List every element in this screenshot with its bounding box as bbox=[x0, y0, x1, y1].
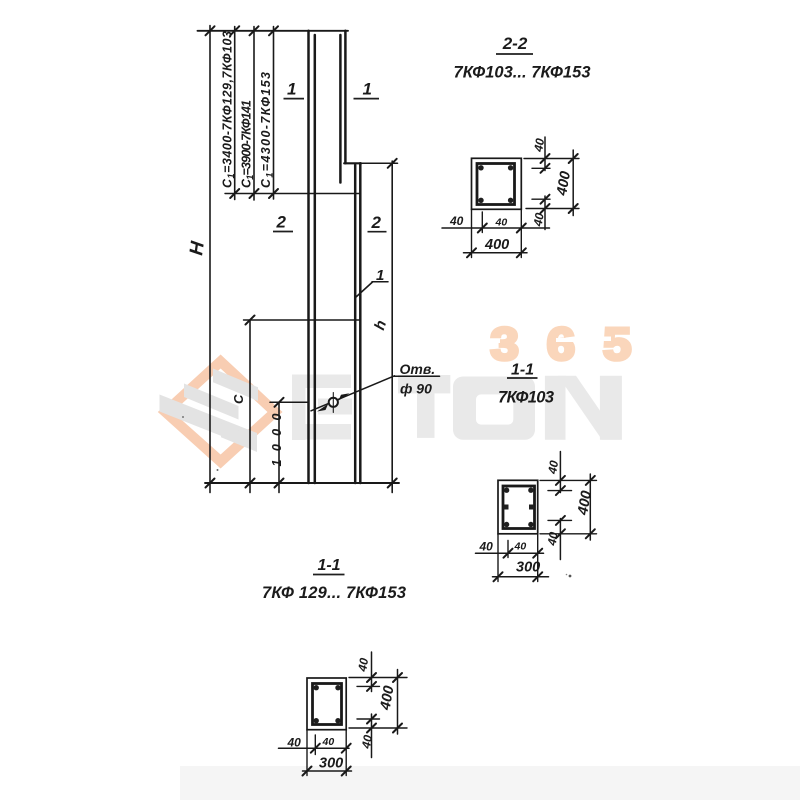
svg-text:C1=4300-7КФ153: C1=4300-7КФ153 bbox=[259, 72, 275, 188]
svg-text:40: 40 bbox=[495, 217, 508, 229]
svg-text:300: 300 bbox=[319, 756, 343, 772]
svg-text:40: 40 bbox=[322, 736, 335, 748]
svg-text:40: 40 bbox=[449, 214, 464, 228]
svg-text:2: 2 bbox=[276, 213, 287, 232]
svg-text:1-1: 1-1 bbox=[511, 362, 534, 379]
svg-text:40: 40 bbox=[355, 657, 371, 674]
svg-text:1-1: 1-1 bbox=[317, 557, 340, 574]
svg-text:ф 90: ф 90 bbox=[400, 381, 432, 397]
svg-text:1: 1 bbox=[287, 80, 296, 99]
svg-text:C: C bbox=[231, 394, 246, 404]
svg-text:C1=3900-7КФ141: C1=3900-7КФ141 bbox=[240, 100, 256, 188]
svg-text:40: 40 bbox=[359, 734, 375, 751]
svg-text:400: 400 bbox=[484, 237, 509, 253]
svg-text:40: 40 bbox=[479, 540, 494, 554]
svg-text:40: 40 bbox=[531, 137, 547, 154]
svg-text:Отв.: Отв. bbox=[400, 361, 436, 377]
svg-text:7КФ 129... 7КФ153: 7КФ 129... 7КФ153 bbox=[262, 584, 406, 602]
svg-text:7КФ103: 7КФ103 bbox=[498, 389, 554, 407]
svg-text:40: 40 bbox=[545, 459, 561, 476]
svg-text:6: 6 bbox=[547, 320, 575, 370]
svg-text:C1=3400-7КФ129,7КФ103: C1=3400-7КФ129,7КФ103 bbox=[221, 31, 237, 188]
svg-text:1: 1 bbox=[376, 267, 384, 284]
svg-text:2-2: 2-2 bbox=[502, 34, 528, 53]
svg-text:7КФ103... 7КФ153: 7КФ103... 7КФ153 bbox=[454, 64, 591, 82]
svg-text:300: 300 bbox=[516, 560, 540, 576]
svg-text:5: 5 bbox=[603, 320, 631, 370]
svg-text:40: 40 bbox=[287, 736, 302, 750]
svg-text:40: 40 bbox=[544, 531, 560, 548]
svg-text:2: 2 bbox=[371, 213, 382, 232]
svg-text:40: 40 bbox=[530, 211, 546, 228]
svg-text:1: 1 bbox=[363, 80, 372, 99]
svg-text:40: 40 bbox=[514, 541, 527, 553]
